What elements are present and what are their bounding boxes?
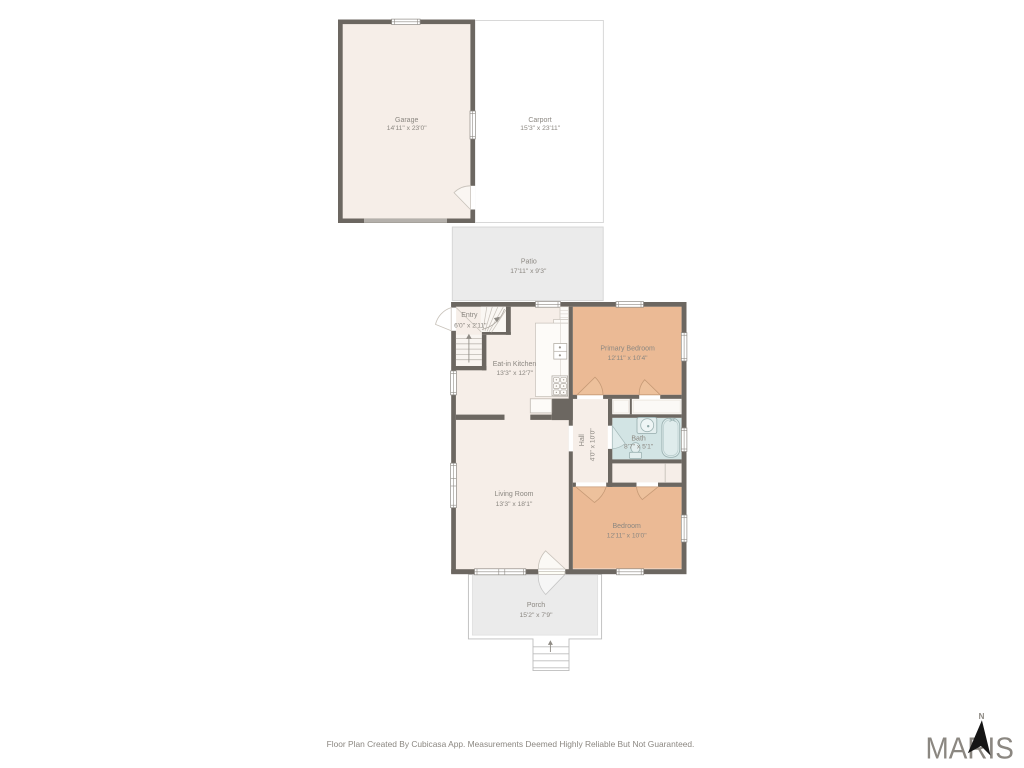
svg-text:17'11" x 9'3": 17'11" x 9'3" (510, 268, 547, 275)
svg-text:Bath: Bath (631, 436, 646, 443)
svg-text:Garage: Garage (395, 117, 418, 124)
svg-text:15'3" x 23'11": 15'3" x 23'11" (520, 125, 561, 132)
svg-text:MARIS: MARIS (926, 731, 1014, 766)
svg-text:15'2" x 7'9": 15'2" x 7'9" (520, 612, 554, 619)
svg-text:13'3" x 12'7": 13'3" x 12'7" (496, 370, 533, 377)
svg-text:8'7" x 5'1": 8'7" x 5'1" (624, 443, 654, 450)
svg-text:Living Room: Living Room (495, 491, 534, 498)
svg-text:4'0" x 10'0": 4'0" x 10'0" (589, 428, 596, 462)
svg-text:Porch: Porch (527, 602, 545, 609)
svg-text:Floor Plan Created By Cubicasa: Floor Plan Created By Cubicasa App. Meas… (327, 739, 695, 749)
svg-text:13'3" x 18'1": 13'3" x 18'1" (496, 501, 533, 508)
svg-text:Carport: Carport (528, 117, 551, 124)
svg-text:Hall: Hall (579, 434, 586, 447)
svg-text:Eat-in Kitchen: Eat-in Kitchen (493, 361, 537, 368)
svg-text:Primary Bedroom: Primary Bedroom (600, 346, 655, 353)
svg-text:6'0" x 2'11": 6'0" x 2'11" (454, 323, 487, 330)
svg-text:N: N (979, 712, 985, 721)
svg-text:12'11" x 10'4": 12'11" x 10'4" (608, 355, 649, 362)
svg-text:14'11" x 23'0": 14'11" x 23'0" (387, 125, 428, 132)
svg-text:12'11" x 10'0": 12'11" x 10'0" (607, 533, 648, 540)
svg-text:Entry: Entry (461, 312, 478, 319)
svg-text:Bedroom: Bedroom (612, 523, 641, 530)
svg-text:Patio: Patio (521, 258, 537, 265)
